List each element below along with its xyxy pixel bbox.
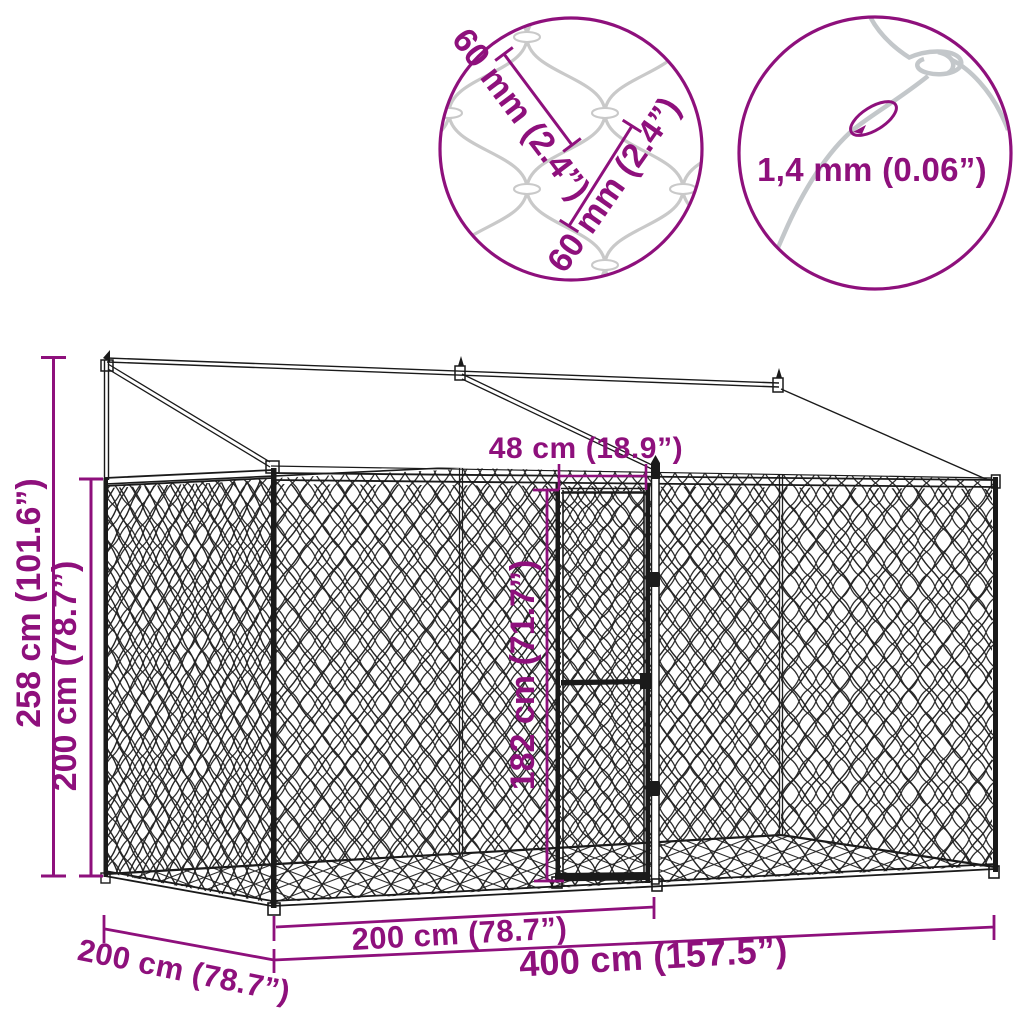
svg-text:182 cm (71.7”): 182 cm (71.7”) [504, 560, 542, 791]
svg-text:1,4 mm (0.06”): 1,4 mm (0.06”) [757, 151, 987, 188]
svg-text:200 cm (78.7”): 200 cm (78.7”) [46, 561, 84, 792]
svg-text:258 cm (101.6”): 258 cm (101.6”) [10, 478, 48, 728]
svg-text:48 cm (18.9”): 48 cm (18.9”) [489, 432, 684, 465]
